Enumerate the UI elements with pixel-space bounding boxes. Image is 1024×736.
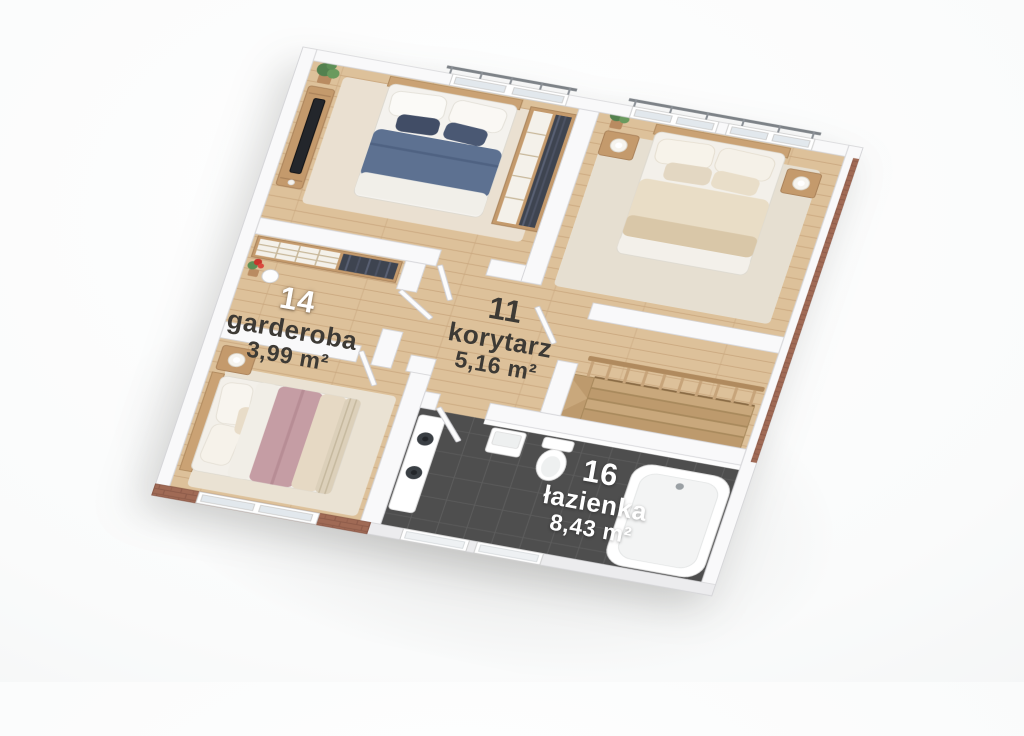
room-label-korytarz: 11 korytarz 5,16 m² [442, 286, 560, 387]
floor-plan-stage: 14 garderoba 3,99 m² 11 korytarz 5,16 m²… [0, 0, 1024, 682]
room-label-lazienka: 16 łazienka 8,43 m² [537, 449, 655, 550]
